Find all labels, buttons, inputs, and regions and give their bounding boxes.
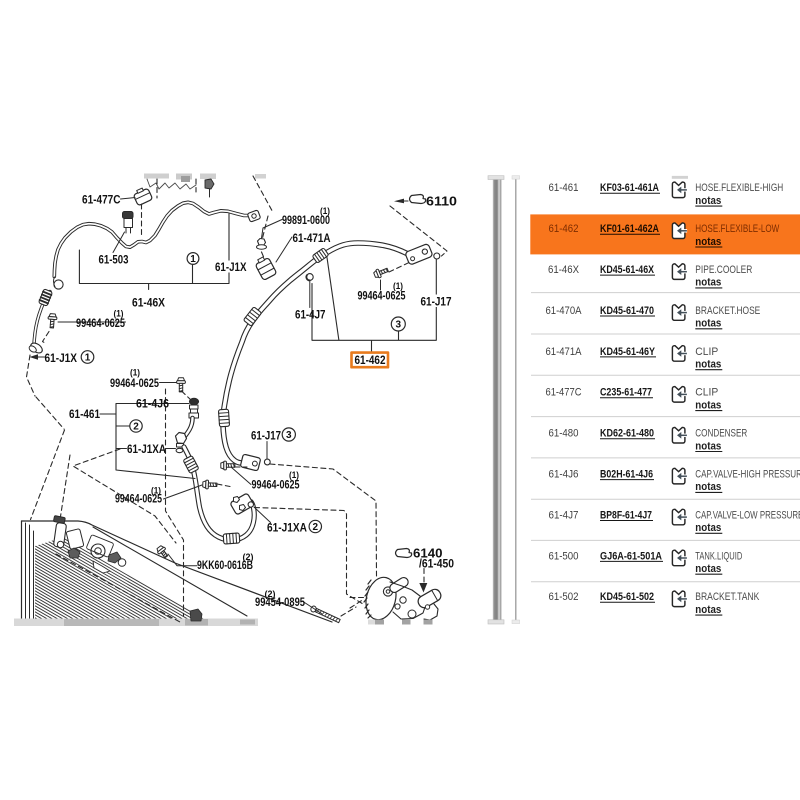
- svg-text:61-4J7: 61-4J7: [549, 509, 579, 521]
- svg-text:61-461: 61-461: [549, 182, 579, 194]
- svg-text:BRACKET.TANK: BRACKET.TANK: [695, 591, 760, 603]
- svg-text:61-471A: 61-471A: [293, 233, 331, 245]
- svg-text:PIPE.COOLER: PIPE.COOLER: [695, 264, 752, 276]
- svg-text:CLIP: CLIP: [695, 346, 718, 358]
- svg-text:61-J1XA: 61-J1XA: [127, 444, 166, 456]
- svg-text:61-502: 61-502: [549, 591, 579, 603]
- svg-text:99464-0625: 99464-0625: [252, 480, 300, 492]
- svg-text:notas: notas: [695, 440, 721, 452]
- svg-text:notas: notas: [695, 604, 721, 616]
- svg-text:notas: notas: [695, 563, 721, 575]
- svg-text:61-4J6: 61-4J6: [549, 469, 579, 481]
- svg-text:61-J17: 61-J17: [421, 297, 452, 309]
- svg-text:BP8F-61-4J7: BP8F-61-4J7: [600, 509, 652, 521]
- svg-text:3: 3: [286, 430, 292, 441]
- svg-text:6110: 6110: [426, 194, 457, 209]
- svg-text:KD45-61-470: KD45-61-470: [600, 305, 654, 317]
- svg-text:99464-0625: 99464-0625: [358, 291, 406, 303]
- svg-text:HOSE.FLEXIBLE-LOW: HOSE.FLEXIBLE-LOW: [695, 223, 779, 235]
- svg-text:61-46X: 61-46X: [132, 298, 165, 310]
- svg-text:KD45-61-46Y: KD45-61-46Y: [600, 346, 656, 358]
- svg-text:HOSE.FLEXIBLE-HIGH: HOSE.FLEXIBLE-HIGH: [695, 182, 783, 194]
- svg-text:TANK.LIQUID: TANK.LIQUID: [695, 550, 742, 562]
- svg-text:61-J1XA: 61-J1XA: [267, 523, 307, 535]
- svg-text:61-J1X: 61-J1X: [45, 353, 78, 365]
- svg-text:61-4J7: 61-4J7: [295, 310, 326, 322]
- svg-text:CONDENSER: CONDENSER: [695, 428, 747, 440]
- svg-text:99454-0895: 99454-0895: [255, 597, 305, 609]
- svg-text:CLIP: CLIP: [695, 387, 718, 399]
- svg-text:B02H-61-4J6: B02H-61-4J6: [600, 469, 653, 481]
- svg-text:61-471A: 61-471A: [546, 346, 583, 358]
- svg-text:9KK60-0616B: 9KK60-0616B: [197, 560, 253, 572]
- svg-text:2: 2: [133, 422, 139, 433]
- svg-text:3: 3: [396, 320, 402, 331]
- svg-text:KF01-61-462A: KF01-61-462A: [600, 223, 659, 235]
- svg-text:notas: notas: [695, 481, 721, 493]
- svg-text:61-477C: 61-477C: [546, 387, 582, 399]
- svg-text:C235-61-477: C235-61-477: [600, 387, 652, 399]
- svg-text:61-J17: 61-J17: [251, 431, 281, 443]
- svg-text:(1): (1): [130, 368, 140, 379]
- svg-text:99464-0625: 99464-0625: [110, 378, 159, 390]
- svg-text:/61-450: /61-450: [419, 559, 454, 571]
- svg-text:61-500: 61-500: [549, 550, 579, 562]
- svg-text:99464-0625: 99464-0625: [76, 318, 125, 330]
- svg-text:CAP.VALVE-LOW PRESSURE: CAP.VALVE-LOW PRESSURE: [695, 509, 800, 521]
- svg-text:61-470A: 61-470A: [546, 305, 583, 317]
- svg-text:61-462: 61-462: [549, 223, 579, 235]
- svg-text:KD45-61-46X: KD45-61-46X: [600, 264, 655, 276]
- svg-text:61-J1X: 61-J1X: [215, 262, 247, 274]
- svg-text:notas: notas: [695, 195, 721, 207]
- svg-text:61-480: 61-480: [549, 428, 579, 440]
- svg-text:GJ6A-61-501A: GJ6A-61-501A: [600, 550, 662, 562]
- svg-text:99891-0600: 99891-0600: [282, 215, 330, 227]
- svg-text:1: 1: [190, 254, 196, 265]
- svg-text:notas: notas: [695, 277, 721, 289]
- svg-text:1: 1: [85, 353, 91, 364]
- svg-text:2: 2: [313, 522, 319, 533]
- svg-text:61-4J6: 61-4J6: [136, 399, 169, 411]
- svg-text:61-503: 61-503: [99, 255, 129, 267]
- svg-text:notas: notas: [695, 399, 721, 411]
- svg-text:notas: notas: [695, 359, 721, 371]
- svg-text:notas: notas: [695, 318, 721, 330]
- svg-text:61-46X: 61-46X: [548, 264, 580, 276]
- svg-text:notas: notas: [695, 236, 721, 248]
- svg-text:KD62-61-480: KD62-61-480: [600, 428, 654, 440]
- svg-text:61-461: 61-461: [69, 409, 101, 421]
- svg-text:BRACKET.HOSE: BRACKET.HOSE: [695, 305, 760, 317]
- svg-text:KD45-61-502: KD45-61-502: [600, 591, 654, 603]
- svg-text:notas: notas: [695, 522, 721, 534]
- svg-text:61-477C: 61-477C: [82, 195, 121, 207]
- svg-text:CAP.VALVE-HIGH PRESSURE: CAP.VALVE-HIGH PRESSURE: [695, 469, 800, 481]
- svg-text:KF03-61-461A: KF03-61-461A: [600, 182, 659, 194]
- svg-text:61-462: 61-462: [355, 355, 386, 367]
- svg-text:99464-0625: 99464-0625: [115, 494, 162, 506]
